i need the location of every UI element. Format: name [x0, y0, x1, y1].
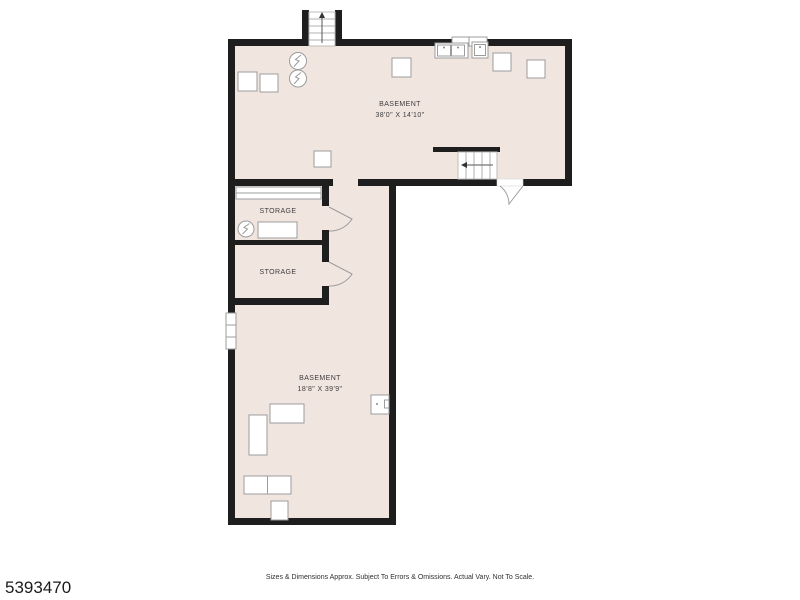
- basement-upper-label: BASEMENT 38'0" X 14'10": [375, 99, 424, 121]
- storage-bottom-label: STORAGE: [260, 267, 297, 278]
- room-name: BASEMENT: [298, 373, 343, 384]
- staircase-interior: [458, 152, 497, 179]
- room-name: STORAGE: [260, 267, 297, 278]
- disclaimer-text: Sizes & Dimensions Approx. Subject To Er…: [266, 574, 534, 581]
- staircase-up-exit: [309, 12, 335, 46]
- appliance-box-1: [238, 72, 257, 91]
- cabinet-pair: [244, 476, 291, 494]
- stairwell-wall-right: [335, 10, 342, 46]
- room-dimensions: 18'8" X 39'9": [298, 384, 343, 395]
- cabinet-tall: [249, 415, 267, 455]
- storage-bottom-door-gap: [322, 262, 329, 286]
- upper-bottom-wall-3: [523, 179, 572, 186]
- freezer-chest: [258, 222, 297, 238]
- room-dimensions: 38'0" X 14'10": [375, 110, 424, 121]
- upper-bottom-wall-2: [358, 179, 497, 186]
- floor-plan-drawing: [0, 0, 800, 600]
- window-lower-left: [226, 313, 236, 349]
- exterior-wall-right-upper: [565, 39, 572, 186]
- storage-shelving: [236, 187, 321, 199]
- appliance-box-3: [392, 58, 411, 77]
- storage-top-label: STORAGE: [260, 206, 297, 217]
- appliance-box-6: [314, 151, 331, 167]
- cabinet-small: [271, 501, 288, 520]
- staircase-wall-bar: [433, 147, 500, 152]
- water-heater-icon-2: [290, 70, 307, 87]
- exterior-wall-bottom: [228, 518, 396, 525]
- upper-bottom-wall-1: [228, 179, 333, 186]
- table: [270, 404, 304, 423]
- listing-id: 5393470: [5, 578, 71, 598]
- room-name: STORAGE: [260, 206, 297, 217]
- storage-bottom-wall: [228, 298, 329, 305]
- storage-wall-right-2: [322, 230, 329, 262]
- water-heater-icon-1: [290, 53, 307, 70]
- exterior-wall-left: [228, 39, 235, 525]
- appliance-box-5: [527, 60, 545, 78]
- double-sink: [435, 43, 468, 58]
- storage-top-door-gap: [322, 206, 329, 230]
- exterior-wall-top-left: [228, 39, 309, 46]
- opening-upper-to-lower: [333, 179, 358, 186]
- exterior-door: [497, 179, 523, 204]
- storage-divider-wall: [228, 240, 329, 245]
- storage-wall-right-1: [322, 186, 329, 206]
- appliance-box-4: [493, 53, 511, 71]
- appliance-box-2: [260, 74, 278, 92]
- basement-lower-label: BASEMENT 18'8" X 39'9": [298, 373, 343, 395]
- exterior-wall-right-lower: [389, 179, 396, 525]
- single-sink: [472, 42, 488, 58]
- laundry-sink: [371, 395, 389, 414]
- water-heater-icon-3: [238, 221, 254, 237]
- room-name: BASEMENT: [375, 99, 424, 110]
- stairwell-wall-left: [302, 10, 309, 46]
- floor-plan-page: BASEMENT 38'0" X 14'10" STORAGE STORAGE …: [0, 0, 800, 600]
